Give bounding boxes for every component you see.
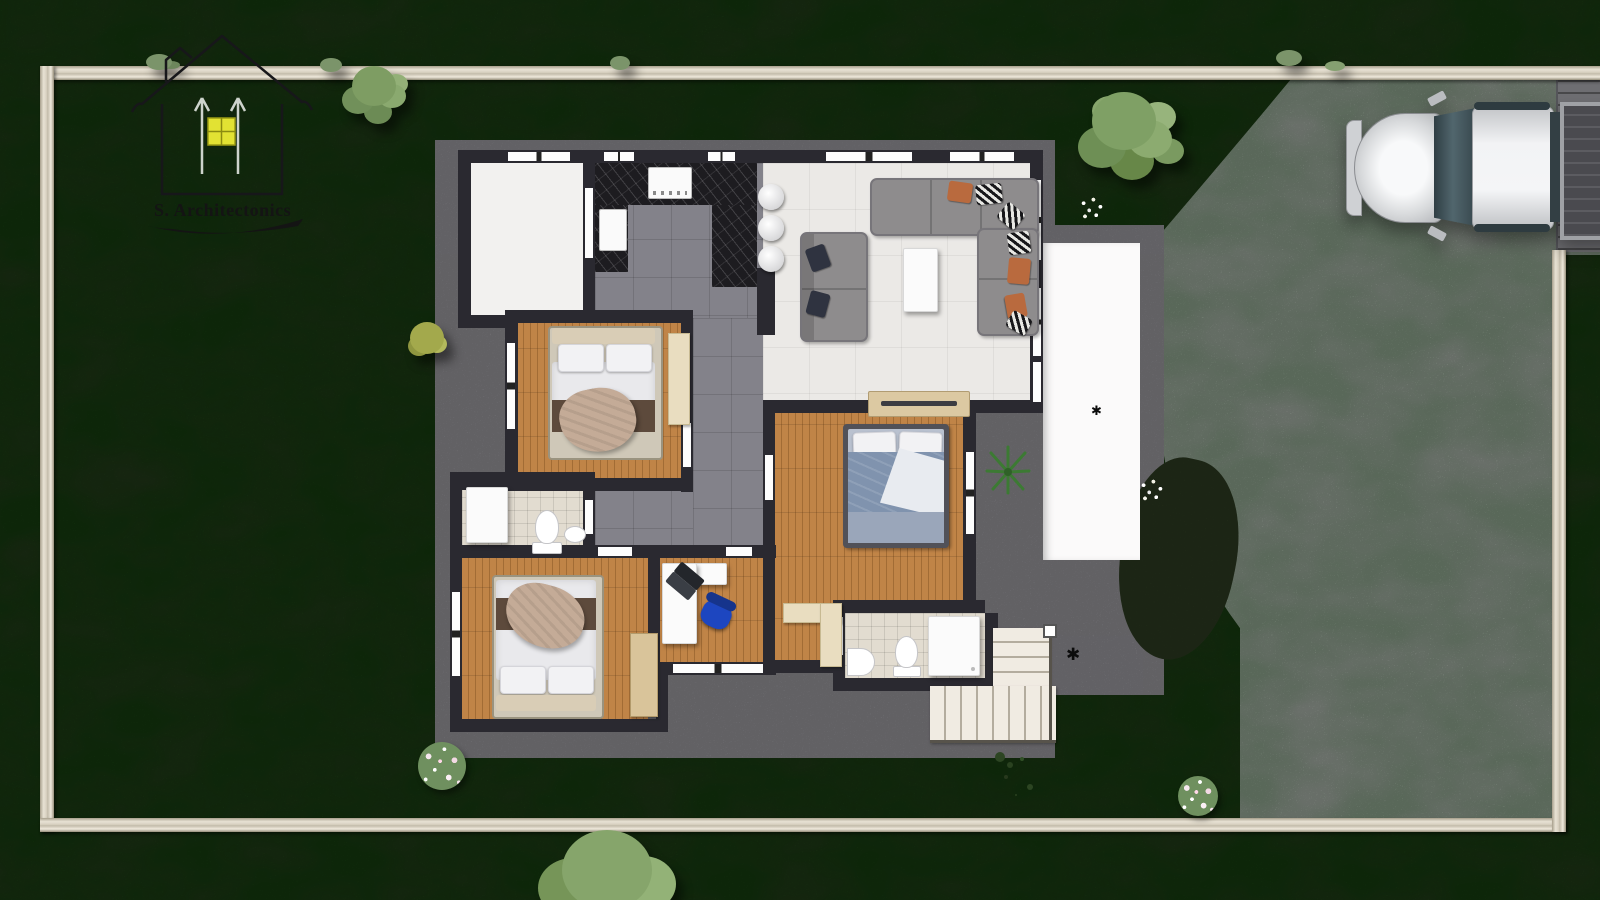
door-opening: [585, 188, 593, 258]
flower-bush: [1178, 776, 1218, 816]
logo-swoosh: [148, 219, 303, 234]
wardrobe: [630, 633, 658, 717]
hallway-floor: [693, 318, 763, 558]
shower: [466, 487, 508, 543]
agave-plant: [984, 444, 1032, 496]
bed-pillow: [558, 344, 604, 372]
toilet: [532, 510, 560, 552]
pillow: [1007, 257, 1031, 285]
logo-text: S. Architectonics: [154, 200, 291, 220]
truck-hood: [1354, 113, 1444, 223]
wall-segment: [505, 310, 693, 323]
wall-segment: [763, 413, 775, 673]
wall-shrub: [610, 56, 630, 70]
pillow: [975, 183, 1003, 206]
master-bed: [843, 424, 949, 548]
sliding-door: [673, 664, 763, 673]
kitchen-counter-right: [712, 205, 757, 287]
truck-side-glass: [1474, 102, 1550, 110]
floor-drain: ✱: [1091, 404, 1102, 417]
master-closet: [820, 603, 842, 667]
cooktop: [648, 167, 692, 199]
door-opening: [585, 500, 593, 534]
sink: [564, 526, 586, 543]
bed-pillow: [500, 666, 546, 694]
wall-segment: [450, 472, 595, 484]
tree: [1092, 92, 1156, 150]
toilet: [893, 636, 919, 676]
window: [950, 152, 1014, 161]
flower-cluster: [1078, 196, 1106, 220]
wall-segment: [845, 600, 985, 613]
wall-segment: [450, 719, 668, 732]
boundary-wall-left: [40, 66, 54, 832]
window: [826, 152, 912, 161]
wall-segment: [757, 268, 775, 335]
wall-segment: [458, 150, 471, 328]
bar-stool: [758, 184, 784, 210]
stair-railing: [1049, 628, 1052, 743]
door-opening: [598, 547, 632, 556]
logo-house-outline: [132, 36, 312, 194]
yard-drain: ✱: [1066, 646, 1080, 663]
bed-pillow: [606, 344, 652, 372]
window: [507, 343, 515, 429]
window: [452, 592, 460, 676]
tree: [352, 66, 396, 106]
garage-room-floor: [462, 163, 583, 322]
pickup-truck: [1332, 96, 1600, 236]
logo: S. Architectonics: [120, 30, 350, 235]
site-plan-render: ✱ ✱: [0, 0, 1600, 900]
shrub: [410, 322, 444, 354]
tree: [562, 830, 652, 900]
stairs-lower-flight: [930, 686, 1056, 742]
boundary-wall-bottom: [40, 818, 1566, 832]
prep-board: [599, 209, 627, 251]
bar-stool: [758, 246, 784, 272]
door-opening: [683, 423, 691, 467]
truck-cab-roof: [1472, 106, 1554, 230]
bar-stool: [758, 215, 784, 241]
door-opening: [765, 455, 773, 500]
wall-shrub: [1276, 50, 1302, 66]
railing-post: [1043, 624, 1057, 638]
window: [508, 152, 570, 161]
bed-pillow: [548, 666, 594, 694]
window: [966, 452, 974, 534]
headboard: [496, 695, 596, 711]
grass-sprigs: [995, 752, 1005, 762]
boundary-wall-right: [1552, 250, 1566, 832]
terrace-floor: [1043, 243, 1140, 560]
media-console: [868, 391, 970, 417]
flower-bush: [418, 742, 466, 790]
corner-sink: [847, 648, 875, 676]
terrace-door: [1033, 362, 1041, 402]
window: [604, 152, 634, 161]
wardrobe: [668, 333, 690, 425]
hallway-floor-leg: [595, 490, 693, 547]
truck-rear-window: [1550, 112, 1560, 222]
pillow: [1007, 231, 1032, 256]
pillow: [947, 180, 974, 203]
flower-cluster: [1138, 478, 1166, 502]
coffee-table: [903, 248, 938, 312]
door-opening: [726, 547, 752, 556]
stairs-upper-flight: [993, 628, 1049, 686]
truck-bed: [1560, 102, 1600, 240]
window: [708, 152, 735, 161]
truck-side-glass: [1474, 224, 1550, 232]
truck-windshield: [1434, 108, 1476, 226]
stair-railing: [930, 740, 1056, 743]
shower: [928, 616, 980, 676]
headboard: [552, 328, 655, 344]
